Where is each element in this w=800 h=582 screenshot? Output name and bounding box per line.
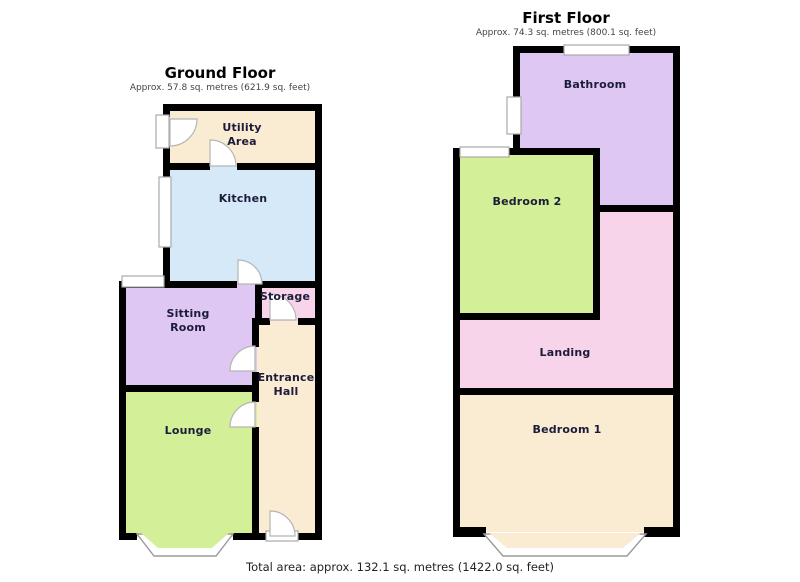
wall <box>513 46 565 53</box>
wall <box>298 318 322 325</box>
first-floor-subtitle: Approx. 74.3 sq. metres (800.1 sq. feet) <box>441 28 691 38</box>
floorplan-page: Ground Floor Approx. 57.8 sq. metres (62… <box>0 0 800 582</box>
entrance-hall-room <box>254 321 320 537</box>
wall <box>252 427 259 540</box>
wall <box>119 533 137 540</box>
wall <box>163 163 210 170</box>
wall <box>163 104 322 111</box>
wall <box>453 148 460 537</box>
wall <box>233 533 270 540</box>
wall <box>593 148 600 320</box>
room-label-entrance-hall: Entrance Hall <box>246 371 326 399</box>
wall <box>237 163 322 170</box>
wall <box>453 388 680 395</box>
exterior-door-frame <box>156 115 169 148</box>
bathroom-side-window <box>507 97 521 134</box>
wall <box>628 46 680 53</box>
bedroom-2-window <box>460 147 509 157</box>
wall <box>262 281 322 288</box>
wall <box>508 148 600 155</box>
kitchen-window <box>159 177 171 247</box>
sitting-room-window <box>122 276 164 287</box>
first-floor-title: First Floor <box>466 9 666 27</box>
room-label-bedroom-2: Bedroom 2 <box>462 195 592 209</box>
ground-floor-title: Ground Floor <box>120 64 320 82</box>
total-area-text: Total area: approx. 132.1 sq. metres (14… <box>0 560 800 574</box>
sitting-room-room <box>121 283 257 390</box>
wall <box>453 313 600 320</box>
wall <box>119 281 126 540</box>
room-label-utility-area: Utility Area <box>207 121 277 149</box>
wall <box>453 527 486 537</box>
room-label-storage: Storage <box>245 290 325 304</box>
wall <box>252 318 270 325</box>
bay-window-inner <box>489 533 641 548</box>
room-label-bathroom: Bathroom <box>545 78 645 92</box>
bedroom-2-room <box>455 150 598 318</box>
wall <box>513 46 520 98</box>
wall <box>593 205 680 212</box>
wall <box>119 385 258 392</box>
bedroom-1-room <box>455 391 677 532</box>
first-floor-plan <box>453 45 680 556</box>
room-label-sitting-room: Sitting Room <box>148 307 228 335</box>
bathroom-top-window <box>564 45 629 55</box>
room-label-bedroom-1: Bedroom 1 <box>502 423 632 437</box>
ground-floor-subtitle: Approx. 57.8 sq. metres (621.9 sq. feet) <box>95 83 345 93</box>
room-label-kitchen: Kitchen <box>193 192 293 206</box>
wall <box>644 527 680 537</box>
room-label-landing: Landing <box>515 346 615 360</box>
room-label-lounge: Lounge <box>138 424 238 438</box>
wall <box>673 46 680 537</box>
